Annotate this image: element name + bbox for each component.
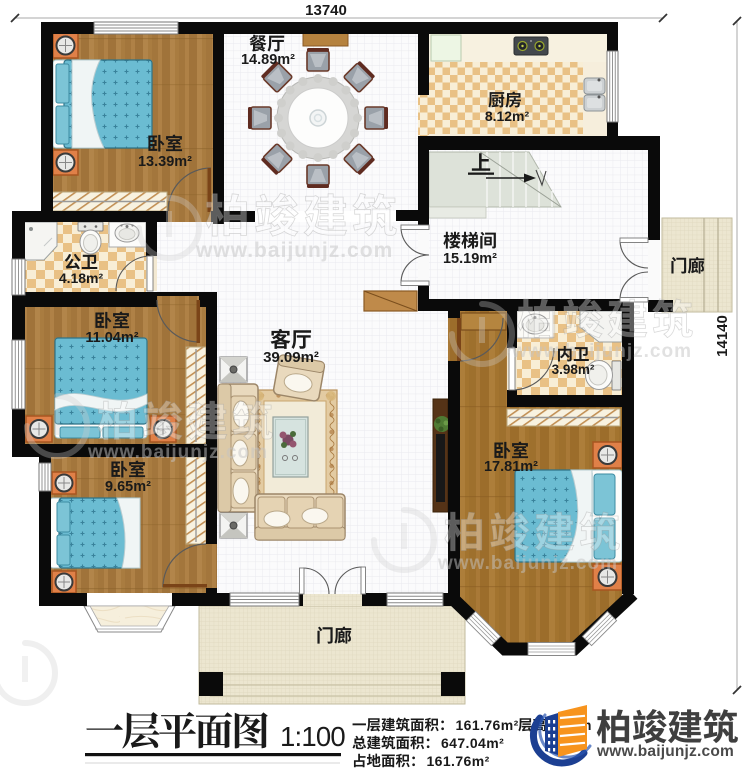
svg-text:647.04m²: 647.04m² — [441, 735, 504, 751]
svg-text:161.76m²: 161.76m² — [456, 717, 519, 733]
svg-text:8.12m²: 8.12m² — [485, 108, 530, 124]
svg-text:13.39m²: 13.39m² — [138, 154, 192, 170]
svg-text:www.baijunjz.com: www.baijunjz.com — [437, 553, 618, 574]
svg-text:161.76m²: 161.76m² — [427, 753, 490, 769]
svg-text:www.baijunjz.com: www.baijunjz.com — [87, 442, 268, 463]
svg-text:17.81m²: 17.81m² — [484, 459, 538, 475]
svg-text:1:100: 1:100 — [280, 721, 345, 752]
svg-text:4.18m²: 4.18m² — [59, 270, 104, 286]
svg-text:13740: 13740 — [305, 2, 347, 19]
svg-text:www.baijunjz.com: www.baijunjz.com — [195, 239, 393, 262]
svg-text:www.baijunjz.com: www.baijunjz.com — [596, 743, 734, 760]
svg-text:www.baijunjz.com: www.baijunjz.com — [511, 341, 692, 362]
svg-text:11.04m²: 11.04m² — [85, 330, 138, 346]
svg-text:3.98m²: 3.98m² — [552, 362, 595, 377]
svg-text:39.09m²: 39.09m² — [263, 349, 319, 366]
svg-text:9.65m²: 9.65m² — [105, 479, 151, 495]
svg-text:14.89m²: 14.89m² — [241, 52, 295, 68]
svg-text:15.19m²: 15.19m² — [443, 251, 497, 267]
svg-text:14140: 14140 — [714, 315, 731, 357]
